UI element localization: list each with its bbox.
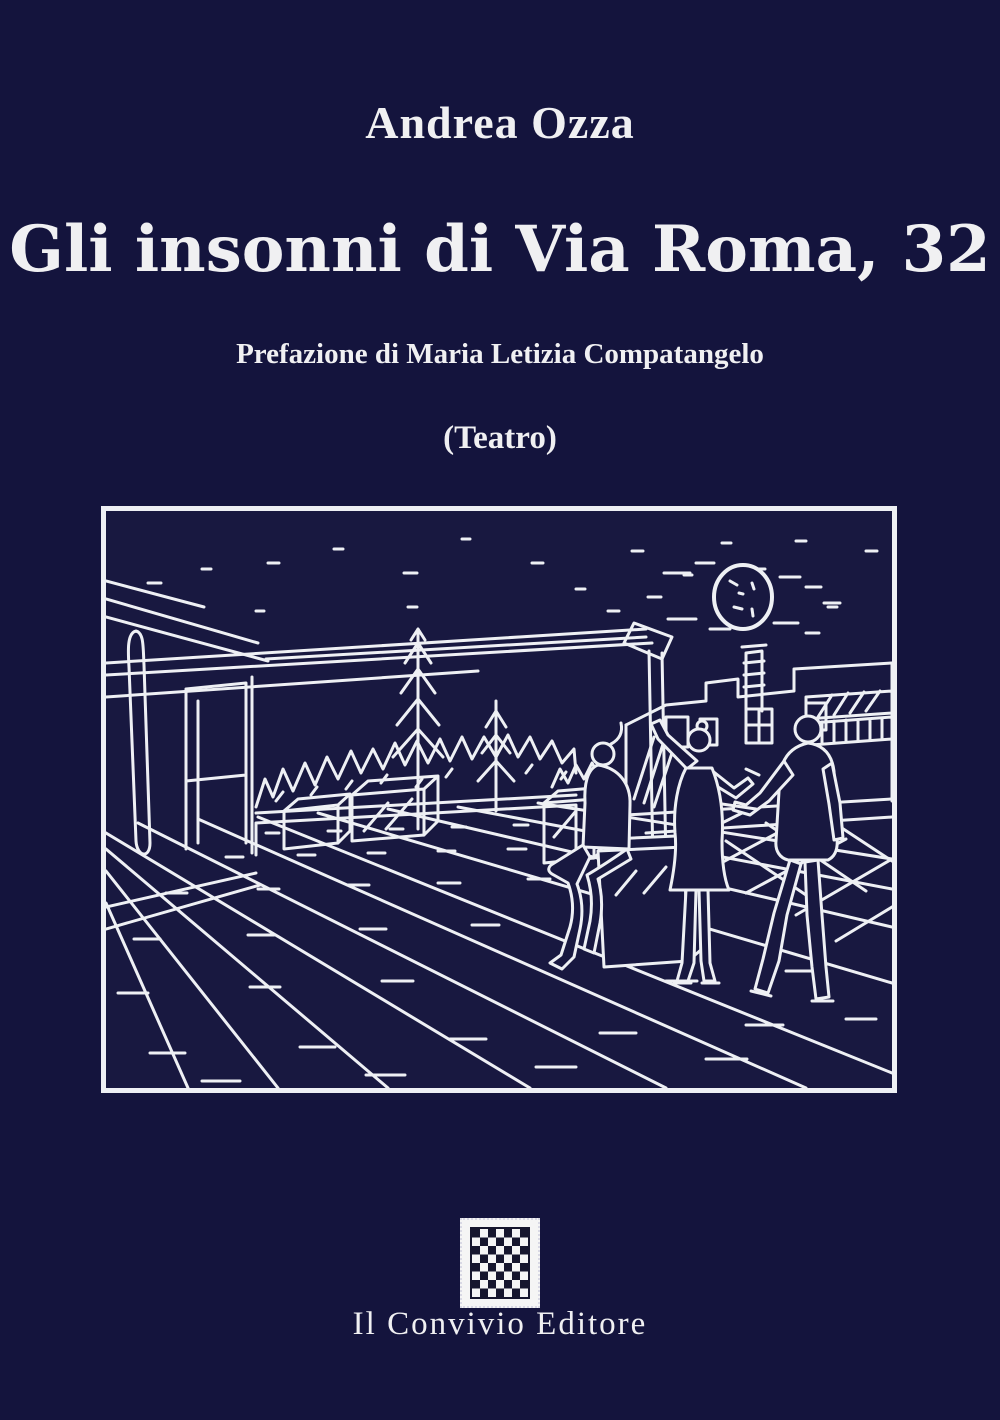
cover-illustration bbox=[101, 506, 897, 1093]
publisher-name: Il Convivio Editore bbox=[0, 1306, 1000, 1343]
terrace-night-drawing bbox=[106, 511, 892, 1088]
book-cover: Andrea Ozza Gli insonni di Via Roma, 32 … bbox=[0, 0, 1000, 1420]
genre-label: (Teatro) bbox=[0, 420, 1000, 457]
author-name: Andrea Ozza bbox=[0, 96, 1000, 149]
standing-man bbox=[722, 716, 843, 1001]
moon-icon bbox=[648, 563, 840, 633]
stars-icon bbox=[148, 539, 892, 611]
checkerboard-icon bbox=[470, 1227, 530, 1299]
door-wall bbox=[106, 677, 260, 929]
preface-credit: Prefazione di Maria Letizia Compatangelo bbox=[0, 338, 1000, 371]
book-title: Gli insonni di Via Roma, 32 bbox=[0, 212, 1000, 287]
publisher-logo bbox=[460, 1218, 540, 1308]
